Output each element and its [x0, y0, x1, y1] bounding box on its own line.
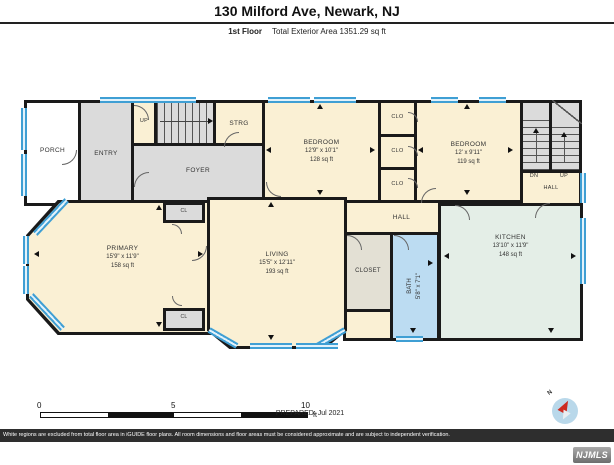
window [21, 154, 27, 196]
disclaimer-bar: White regions are excluded from total fl… [0, 429, 614, 442]
window [314, 97, 356, 103]
room-hall-right [520, 170, 582, 206]
scale-segment [108, 413, 175, 417]
title-divider [0, 22, 614, 24]
window [23, 236, 29, 264]
page-title: 130 Milford Ave, Newark, NJ [0, 3, 614, 19]
stair-diagonal-line [552, 100, 582, 124]
dimension-arrow [156, 322, 162, 327]
njmls-logo: NJMLS [573, 447, 611, 463]
window [431, 97, 458, 103]
stair-up-arrow-icon [561, 132, 567, 137]
floor-label: 1st Floor [228, 27, 262, 36]
stair-up-arrow-icon [533, 128, 539, 133]
compass-icon [552, 398, 578, 424]
stair-treads [523, 118, 551, 170]
dimension-arrow [198, 251, 203, 257]
dimension-arrow [418, 147, 423, 153]
dimension-arrow [268, 202, 274, 207]
window [296, 343, 338, 349]
dimension-arrow [268, 335, 274, 340]
dimension-arrow [464, 190, 470, 195]
stairs-top-left [154, 100, 216, 146]
window [580, 218, 586, 284]
room-living-nook [343, 309, 393, 341]
stair-up-arrow-icon [536, 132, 537, 162]
scale-tick-10: 10 [301, 401, 310, 410]
window [580, 173, 586, 203]
scale-segment [41, 413, 108, 417]
dimension-arrow [571, 253, 576, 259]
window [250, 343, 292, 349]
dimension-arrow [508, 147, 513, 153]
window [21, 108, 27, 150]
room-strg [213, 100, 265, 146]
exterior-area-label: Total Exterior Area 1351.29 sq ft [272, 27, 386, 36]
window [23, 266, 29, 294]
dimension-arrow [266, 147, 271, 153]
room-entry [78, 100, 134, 206]
dimension-arrow [156, 205, 162, 210]
window [268, 97, 310, 103]
room-foyer [131, 143, 265, 206]
prepared-date: PREPARED: Jul 2021 [230, 410, 390, 417]
window [479, 97, 506, 103]
label-bath: BATH5'8" x 7'1" [390, 240, 440, 332]
room-cl-upper [163, 202, 205, 223]
stair-up-arrow-icon [564, 136, 565, 162]
window [396, 336, 423, 342]
scale-tick-5: 5 [171, 401, 175, 410]
window [100, 97, 196, 103]
room-kitchen [438, 203, 583, 341]
dimension-arrow [548, 328, 554, 333]
floor-subheader: 1st FloorTotal Exterior Area 1351.29 sq … [0, 27, 614, 36]
dimension-arrow [317, 104, 323, 109]
room-cl-lower [163, 308, 205, 331]
dimension-arrow [370, 147, 375, 153]
scale-tick-0: 0 [37, 401, 41, 410]
dimension-arrow [464, 104, 470, 109]
room-bedroom-right [414, 100, 523, 203]
dimension-arrow [34, 251, 39, 257]
room-living [210, 200, 344, 346]
dimension-arrow [444, 253, 449, 259]
stair-direction-line [160, 121, 208, 122]
dimension-arrow [317, 190, 323, 195]
compass-north-label: N [547, 389, 554, 396]
